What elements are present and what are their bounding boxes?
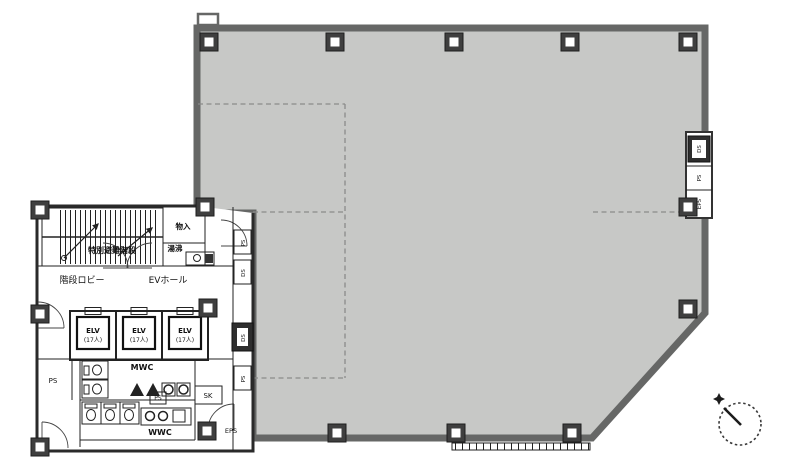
north-star-icon — [713, 393, 725, 405]
ps-room-label: PS — [49, 377, 58, 385]
floor-plan-drawing: DS PS EPS — [0, 0, 787, 475]
ds-label: DS — [241, 334, 247, 342]
column — [563, 424, 581, 442]
hot-water-label: 湯沸 — [168, 243, 183, 253]
appliance — [205, 254, 213, 263]
storage-label: 物入 — [176, 221, 191, 231]
elevator-label: ELV — [86, 327, 100, 335]
womens-wc-label: WWC — [148, 428, 172, 437]
compass-icon — [713, 393, 761, 445]
elevator-label: ELV — [178, 327, 192, 335]
shaft-eps-label: EPS — [697, 198, 703, 209]
mens-wc-label: MWC — [131, 363, 154, 372]
column — [679, 300, 697, 318]
eps-label: EPS — [225, 427, 237, 435]
column — [328, 424, 346, 442]
ps-label: PS — [241, 239, 247, 246]
stair-lobby-label: 階段ロビー — [59, 274, 104, 286]
elevator-label: ELV — [132, 327, 146, 335]
sk-label: SK — [203, 392, 212, 400]
parapet-notch — [198, 14, 218, 25]
ds-label: DS — [241, 269, 247, 277]
ev-hall-label: EVホール — [149, 275, 188, 286]
elevator-capacity: (17人) — [176, 337, 194, 344]
column — [326, 33, 344, 51]
floor-plan: DS PS EPS — [0, 0, 787, 475]
ps-label: PS — [241, 375, 247, 382]
column — [445, 33, 463, 51]
column — [447, 424, 465, 442]
elevator-capacity: (17人) — [130, 337, 148, 344]
north-needle — [724, 408, 741, 425]
core-area: ELV (17人) ELV (17人) ELV (17人) — [37, 206, 253, 451]
column — [31, 438, 49, 456]
shaft-ps-label: PS — [697, 174, 703, 181]
shaft-ds-label: DS — [697, 145, 703, 153]
column — [196, 198, 214, 216]
column — [31, 201, 49, 219]
elevator-capacity: (17人) — [84, 337, 102, 344]
column — [200, 33, 218, 51]
column — [679, 198, 697, 216]
column — [561, 33, 579, 51]
staircase — [42, 208, 163, 266]
louver-strip — [452, 443, 590, 450]
office-area — [197, 14, 705, 450]
column — [198, 422, 216, 440]
ps-mid-label: PS — [154, 395, 162, 402]
column — [679, 33, 697, 51]
stairs-label: 特別避難階段 — [88, 245, 136, 255]
column — [31, 305, 49, 323]
column — [199, 299, 217, 317]
